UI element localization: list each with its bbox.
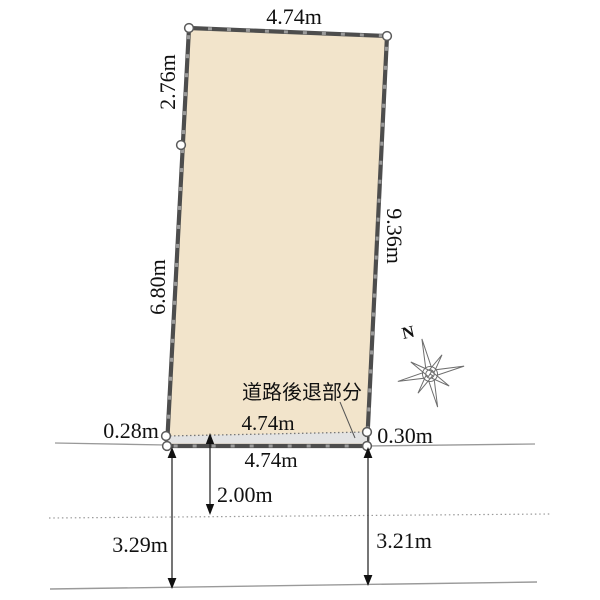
label-top-width: 4.74m — [266, 4, 322, 29]
vertex-left-mid — [177, 141, 186, 150]
label-setback-left: 0.28m — [103, 418, 159, 443]
vertex-setback-left — [162, 432, 171, 441]
plot-diagram: N 4.74m 2.76m 6.80m 9.36m 0.28m 0.30m 道路… — [0, 0, 600, 600]
compass-north-label: N — [400, 322, 417, 343]
arrow-down-center-offset — [206, 504, 214, 515]
label-left-lower-side: 6.80m — [145, 259, 170, 315]
vertex-bottom-left — [163, 442, 172, 451]
label-left-upper-side: 2.76m — [155, 54, 180, 110]
road-near-edge-left — [55, 443, 166, 445]
label-setback-right: 0.30m — [377, 423, 433, 448]
label-setback-area: 道路後退部分 — [242, 381, 362, 404]
vertex-bottom-right — [363, 442, 372, 451]
road-centerline — [49, 514, 550, 518]
label-road-width-left: 3.29m — [112, 532, 168, 557]
road-lines — [49, 443, 550, 589]
label-frontage: 4.74m — [244, 448, 297, 472]
label-road-width-right: 3.21m — [376, 528, 432, 553]
plot-diagram-svg: N 4.74m 2.76m 6.80m 9.36m 0.28m 0.30m 道路… — [0, 0, 600, 600]
label-right-side: 9.36m — [382, 208, 407, 264]
road-far-edge — [50, 582, 537, 589]
compass-icon: N — [385, 313, 471, 415]
vertex-top-left — [185, 24, 194, 33]
vertex-top-right — [383, 32, 392, 41]
label-road-center-offset: 2.00m — [217, 482, 273, 507]
vertex-setback-right — [363, 428, 372, 437]
label-setback-frontage: 4.74m — [241, 411, 294, 435]
